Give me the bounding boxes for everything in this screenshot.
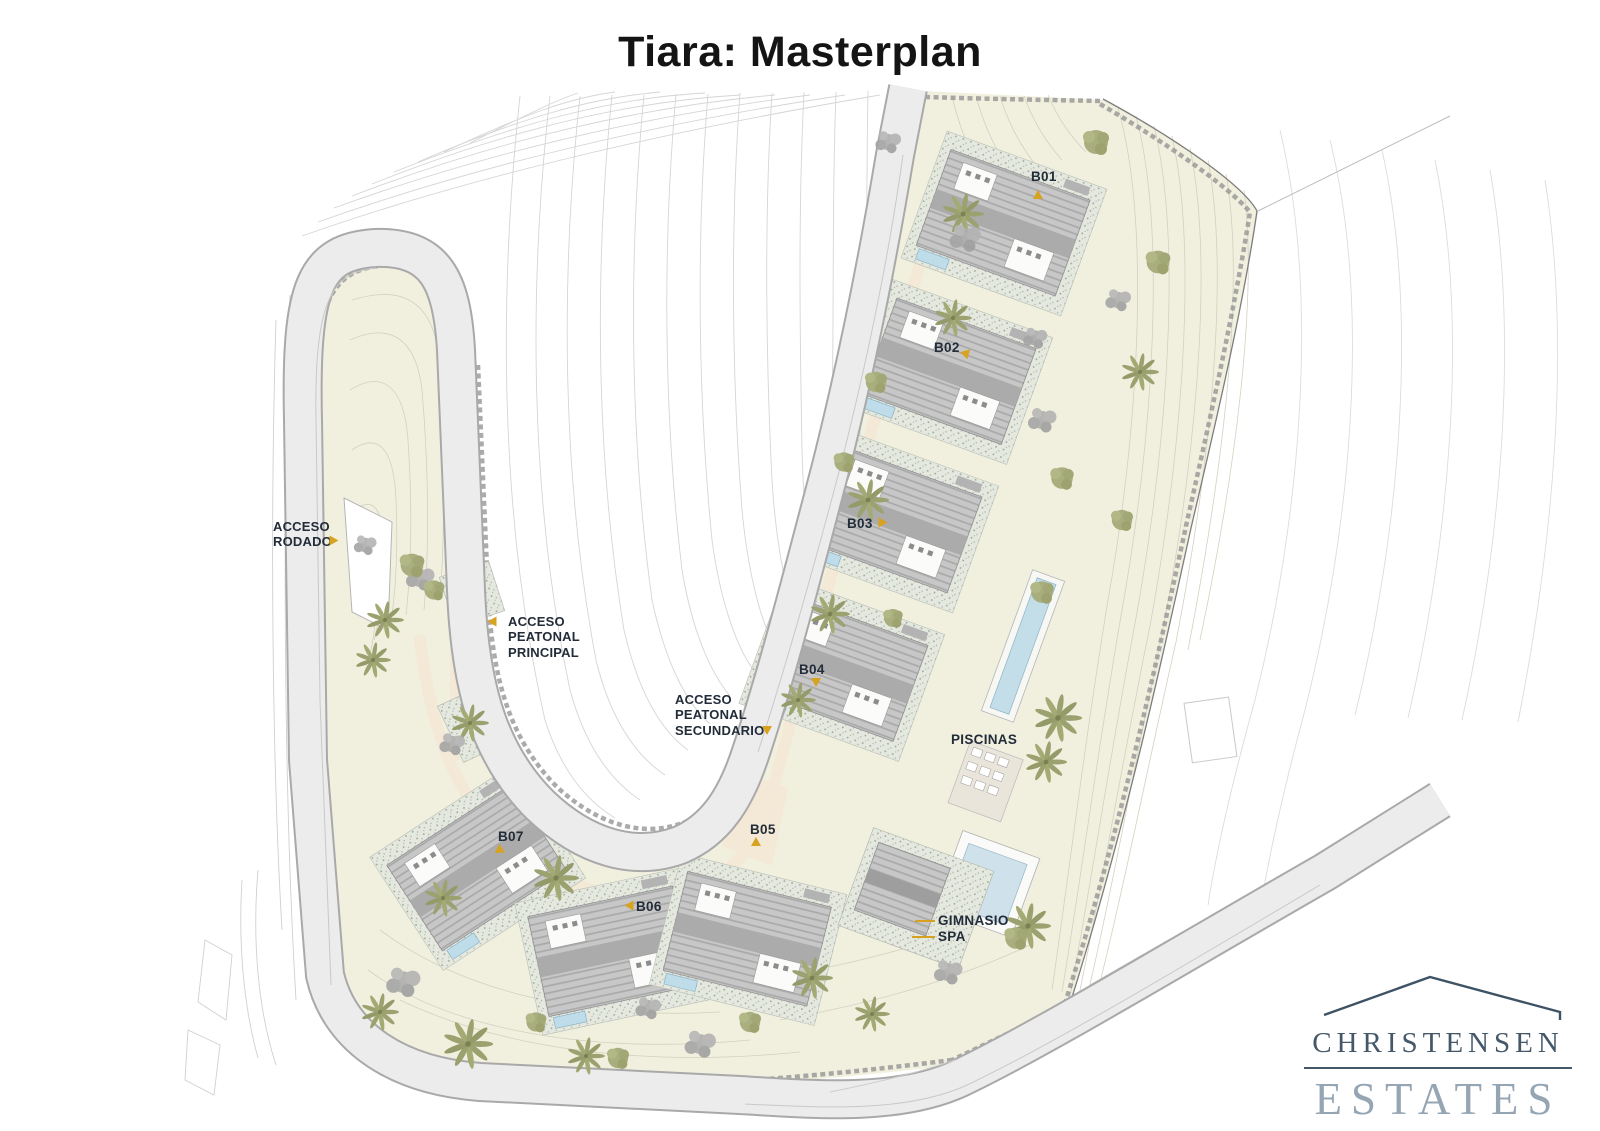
amenity-label-gimnasio: GIMNASIO [938,913,1009,928]
leader-line [915,920,935,922]
marker-arrow-icon [879,518,888,528]
marker-arrow-icon [1033,190,1043,199]
access-arrow-icon [330,536,339,546]
amenity-label-spa: SPA [938,929,966,944]
amenity-label-piscinas: PISCINAS [951,732,1017,747]
marker-arrow-icon [625,901,634,911]
building-marker-b02: B02 [934,340,960,355]
access-arrow-icon [762,726,772,735]
christensen-estates-logo: CHRISTENSEN ESTATES [1290,962,1586,1125]
marker-arrow-icon [751,837,761,846]
building-marker-b01: B01 [1031,169,1057,184]
building-marker-b06: B06 [636,899,662,914]
building-marker-b05: B05 [750,822,776,837]
access-arrow-icon [488,617,497,627]
leader-line [912,936,935,938]
roof-icon [1290,962,1586,1020]
page-title: Tiara: Masterplan [0,28,1600,77]
logo-name: CHRISTENSEN [1304,1025,1572,1069]
access-label-principal: ACCESO PEATONAL PRINCIPAL [508,614,596,660]
building-marker-b07: B07 [498,829,524,844]
marker-arrow-icon [811,678,821,687]
masterplan-page: Tiara: Masterplan B01 B02 B03 B04 B05 B0… [0,0,1600,1131]
building-marker-b03: B03 [847,516,873,531]
logo-descriptor: ESTATES [1290,1073,1586,1125]
building-marker-b04: B04 [799,662,825,677]
